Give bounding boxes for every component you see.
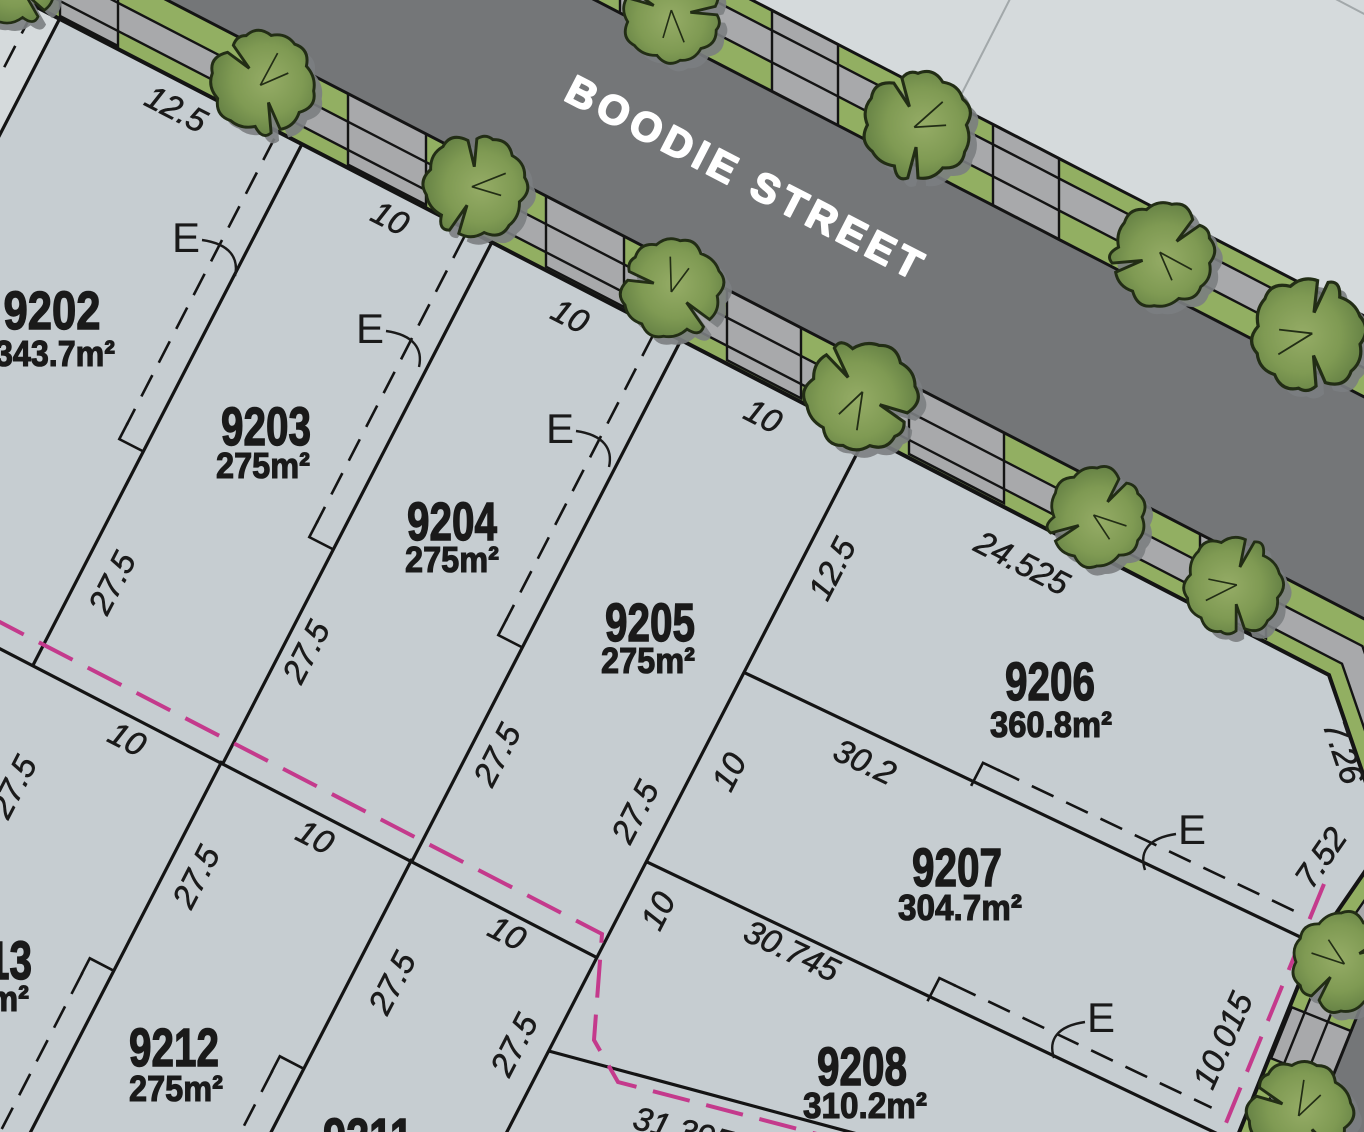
svg-text:304.7m²: 304.7m² <box>898 887 1022 928</box>
svg-text:343.7m²: 343.7m² <box>0 333 115 374</box>
svg-text:9202: 9202 <box>4 281 101 341</box>
svg-text:9211: 9211 <box>323 1108 413 1132</box>
svg-text:E: E <box>1087 994 1115 1041</box>
svg-text:275m²: 275m² <box>216 445 310 486</box>
svg-text:E: E <box>546 405 574 452</box>
svg-text:E: E <box>1178 806 1206 853</box>
svg-text:275m²: 275m² <box>405 539 499 580</box>
svg-text:275m²: 275m² <box>601 640 695 681</box>
svg-text:275m²: 275m² <box>129 1068 223 1109</box>
svg-text:E: E <box>172 214 200 261</box>
svg-text:9206: 9206 <box>1005 652 1095 712</box>
svg-text:310.2m²: 310.2m² <box>803 1085 927 1126</box>
svg-text:360.8m²: 360.8m² <box>990 704 1112 745</box>
svg-text:275m²: 275m² <box>0 978 29 1019</box>
svg-text:E: E <box>356 305 384 352</box>
